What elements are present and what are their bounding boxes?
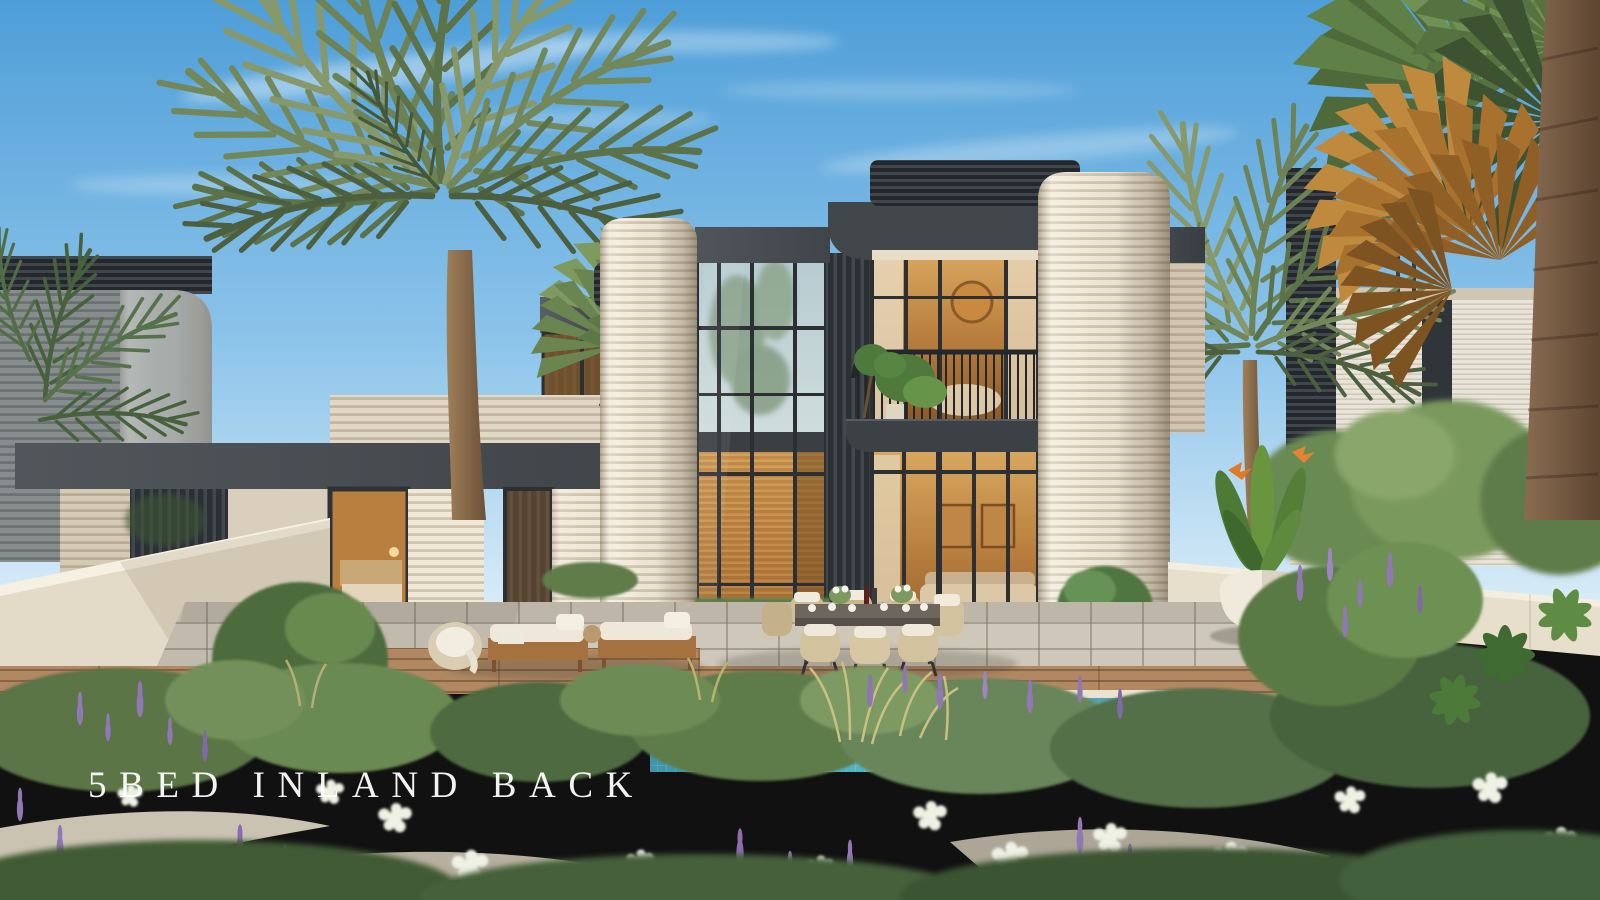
balcony-slab [846, 420, 1052, 452]
side-table [583, 625, 601, 643]
caption-overlay: 5BED INLAND BACK [88, 764, 645, 807]
render-image: 5BED INLAND BACK [0, 0, 1600, 900]
